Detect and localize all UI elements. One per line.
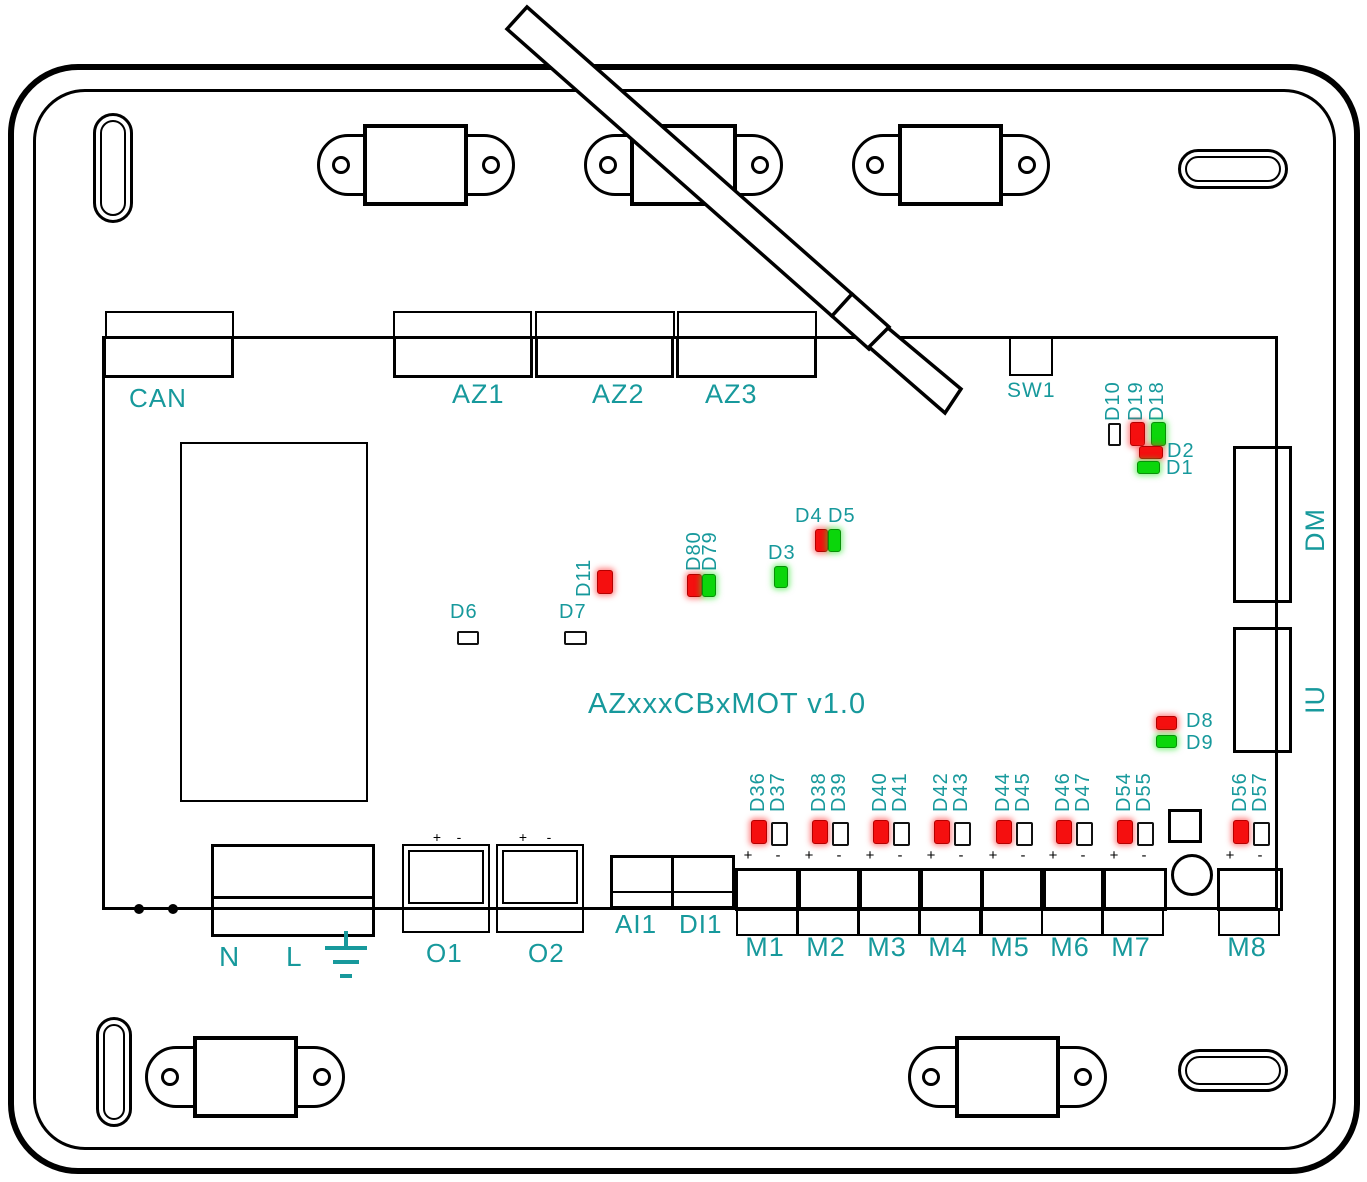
d38-led bbox=[812, 820, 828, 844]
d19-label: D19 bbox=[1126, 377, 1146, 421]
m8-minus-mark: - bbox=[1253, 848, 1267, 863]
buzzer-circle bbox=[1171, 854, 1213, 896]
m6-connector bbox=[1040, 868, 1106, 911]
m3-column: D40 D41 + - M3 bbox=[857, 766, 917, 966]
ai1-di1-divider bbox=[671, 855, 674, 909]
d9-led bbox=[1156, 735, 1177, 748]
mount-tab-body bbox=[898, 124, 1003, 206]
m3-connector bbox=[857, 868, 923, 911]
m2-column: D38 D39 + - M2 bbox=[796, 766, 856, 966]
slot-bottom-left-inner bbox=[103, 1024, 125, 1120]
board-title: AZxxxCBxMOT v1.0 bbox=[588, 688, 866, 721]
d43-led bbox=[954, 822, 971, 846]
d79-led bbox=[702, 574, 716, 597]
d46-label: D46 bbox=[1053, 766, 1073, 812]
az1-connector-top bbox=[393, 311, 532, 338]
board-diagram: CAN AZ1 AZ2 AZ3 SW1 DM IU D10 D19 D18 D2… bbox=[0, 0, 1367, 1182]
m6-minus-mark: - bbox=[1076, 848, 1090, 863]
m6-plus-mark: + bbox=[1046, 848, 1060, 863]
az3-connector-top bbox=[677, 311, 817, 338]
component-square bbox=[1168, 809, 1202, 843]
can-connector-top bbox=[105, 311, 234, 338]
d19-led bbox=[1130, 422, 1145, 446]
o2-label: O2 bbox=[528, 938, 565, 969]
d3-label: D3 bbox=[768, 542, 796, 565]
d54-label: D54 bbox=[1114, 766, 1134, 812]
az2-label: AZ2 bbox=[592, 379, 645, 410]
iu-connector bbox=[1233, 627, 1292, 753]
d45-label: D45 bbox=[1013, 766, 1033, 812]
d44-led bbox=[996, 820, 1012, 844]
m7-plus-mark: + bbox=[1107, 848, 1121, 863]
d79-label: D79 bbox=[700, 517, 720, 571]
mount-hole bbox=[161, 1068, 179, 1086]
d56-label: D56 bbox=[1230, 766, 1250, 812]
m1-minus-mark: - bbox=[771, 848, 785, 863]
m4-connector bbox=[918, 868, 984, 911]
d41-led bbox=[893, 822, 910, 846]
d7-led bbox=[564, 631, 587, 645]
solder-dot bbox=[134, 904, 144, 914]
m1-plus-mark: + bbox=[741, 848, 755, 863]
m8-column: D56 D57 + - M8 bbox=[1217, 766, 1277, 966]
ai1-di1-line bbox=[612, 891, 733, 893]
m1-connector bbox=[735, 868, 801, 911]
d1-label: D1 bbox=[1166, 457, 1194, 480]
d10-led bbox=[1108, 423, 1121, 446]
d40-led bbox=[873, 820, 889, 844]
d38-label: D38 bbox=[809, 766, 829, 812]
slot-bottom-right-inner bbox=[1185, 1056, 1281, 1085]
d3-led bbox=[774, 566, 788, 588]
d37-label: D37 bbox=[768, 766, 788, 812]
m3-plus-mark: + bbox=[863, 848, 877, 863]
d7-label: D7 bbox=[559, 601, 587, 624]
m8-connector bbox=[1217, 868, 1283, 911]
sw1-label: SW1 bbox=[1007, 379, 1056, 403]
mount-hole bbox=[332, 156, 350, 174]
d18-label: D18 bbox=[1147, 377, 1167, 421]
power-terminal-divider bbox=[213, 896, 373, 899]
d41-label: D41 bbox=[890, 766, 910, 812]
d11-label: D11 bbox=[574, 563, 594, 597]
mount-hole bbox=[866, 156, 884, 174]
o1-plus-mark: + bbox=[430, 830, 444, 845]
d43-label: D43 bbox=[951, 766, 971, 812]
slot-top-right-inner bbox=[1185, 156, 1281, 182]
m7-connector bbox=[1101, 868, 1167, 911]
can-connector bbox=[103, 336, 234, 378]
m4-column: D42 D43 + - M4 bbox=[918, 766, 978, 966]
o1-connector-inner bbox=[408, 850, 484, 904]
az3-label: AZ3 bbox=[705, 379, 758, 410]
d10-label: D10 bbox=[1103, 377, 1123, 421]
mount-tab-body bbox=[630, 124, 737, 206]
d2-led bbox=[1139, 446, 1163, 459]
power-terminal bbox=[211, 844, 375, 937]
o2-plus-mark: + bbox=[516, 830, 530, 845]
mount-hole bbox=[599, 156, 617, 174]
sw1-switch bbox=[1009, 336, 1053, 376]
mount-tab-body bbox=[193, 1036, 298, 1118]
transformer-outline bbox=[180, 442, 368, 802]
d6-label: D6 bbox=[450, 601, 478, 624]
iu-label: IU bbox=[1300, 674, 1330, 714]
mount-tab-body bbox=[363, 124, 468, 206]
m5-minus-mark: - bbox=[1016, 848, 1030, 863]
m4-plus-mark: + bbox=[924, 848, 938, 863]
can-label: CAN bbox=[129, 383, 187, 414]
d42-label: D42 bbox=[931, 766, 951, 812]
d36-label: D36 bbox=[748, 766, 768, 812]
neutral-label: N bbox=[219, 941, 240, 973]
d4-led bbox=[815, 529, 828, 552]
m1-column: D36 D37 + - M1 bbox=[735, 766, 795, 966]
d57-label: D57 bbox=[1250, 766, 1270, 812]
d37-led bbox=[771, 822, 788, 846]
m2-minus-mark: - bbox=[832, 848, 846, 863]
line-label: L bbox=[286, 941, 303, 973]
mount-hole bbox=[313, 1068, 331, 1086]
d57-led bbox=[1253, 822, 1270, 846]
d9-label: D9 bbox=[1186, 732, 1214, 755]
m8-plus-mark: + bbox=[1223, 848, 1237, 863]
d39-led bbox=[832, 822, 849, 846]
d6-led bbox=[457, 631, 479, 645]
d47-led bbox=[1076, 822, 1093, 846]
m4-minus-mark: - bbox=[954, 848, 968, 863]
m8-label: M8 bbox=[1211, 932, 1283, 963]
d55-label: D55 bbox=[1134, 766, 1154, 812]
o2-connector-inner bbox=[502, 850, 578, 904]
az2-connector-top bbox=[535, 311, 675, 338]
di1-label: DI1 bbox=[679, 909, 722, 940]
d36-led bbox=[751, 820, 767, 844]
az1-connector bbox=[393, 336, 533, 378]
m5-plus-mark: + bbox=[986, 848, 1000, 863]
d11-led bbox=[597, 570, 613, 594]
az1-label: AZ1 bbox=[452, 379, 505, 410]
d5-led bbox=[828, 529, 841, 552]
m6-column: D46 D47 + - M6 bbox=[1040, 766, 1100, 966]
d44-label: D44 bbox=[993, 766, 1013, 812]
mount-tab-body bbox=[955, 1036, 1060, 1118]
m7-column: D54 D55 + - M7 bbox=[1101, 766, 1161, 966]
mount-hole bbox=[482, 156, 500, 174]
o2-minus-mark: - bbox=[542, 830, 556, 845]
m7-label: M7 bbox=[1095, 932, 1167, 963]
m3-minus-mark: - bbox=[893, 848, 907, 863]
d56-led bbox=[1233, 820, 1249, 844]
solder-dot bbox=[168, 904, 178, 914]
d4-label: D4 bbox=[795, 505, 823, 528]
d18-led bbox=[1151, 422, 1166, 446]
d54-led bbox=[1117, 820, 1133, 844]
d47-label: D47 bbox=[1073, 766, 1093, 812]
d5-label: D5 bbox=[828, 505, 856, 528]
m7-minus-mark: - bbox=[1137, 848, 1151, 863]
d1-led bbox=[1137, 461, 1160, 474]
slot-top-left-inner bbox=[100, 120, 126, 216]
d55-led bbox=[1137, 822, 1154, 846]
d46-led bbox=[1056, 820, 1072, 844]
m2-connector bbox=[796, 868, 862, 911]
dm-connector bbox=[1233, 446, 1292, 603]
m5-connector bbox=[980, 868, 1046, 911]
o1-minus-mark: - bbox=[452, 830, 466, 845]
d80-led bbox=[687, 574, 702, 597]
dm-label: DM bbox=[1300, 494, 1330, 552]
mount-hole bbox=[1018, 156, 1036, 174]
d40-label: D40 bbox=[870, 766, 890, 812]
o1-label: O1 bbox=[426, 938, 463, 969]
d45-led bbox=[1016, 822, 1033, 846]
mount-hole bbox=[922, 1068, 940, 1086]
az3-connector bbox=[676, 336, 817, 378]
d8-label: D8 bbox=[1186, 710, 1214, 733]
d42-led bbox=[934, 820, 950, 844]
mount-hole bbox=[751, 156, 769, 174]
d8-led bbox=[1156, 716, 1177, 730]
m2-plus-mark: + bbox=[802, 848, 816, 863]
mount-hole bbox=[1074, 1068, 1092, 1086]
ai1-label: AI1 bbox=[615, 909, 657, 940]
d39-label: D39 bbox=[829, 766, 849, 812]
m5-column: D44 D45 + - M5 bbox=[980, 766, 1040, 966]
earth-ground-icon bbox=[322, 930, 370, 982]
az2-connector bbox=[535, 336, 674, 378]
